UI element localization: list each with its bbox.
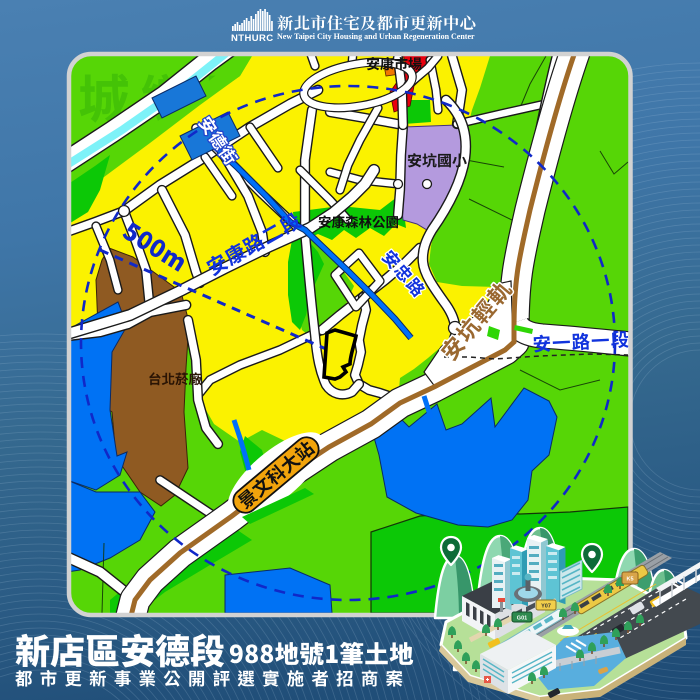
- svg-text:NTHURC: NTHURC: [231, 33, 274, 44]
- svg-text:New Taipei City Housing and Ur: New Taipei City Housing and Urban Regene…: [277, 32, 475, 41]
- svg-text:G01: G01: [517, 616, 527, 622]
- svg-text:Y07: Y07: [541, 604, 551, 610]
- svg-text:K5: K5: [626, 577, 633, 583]
